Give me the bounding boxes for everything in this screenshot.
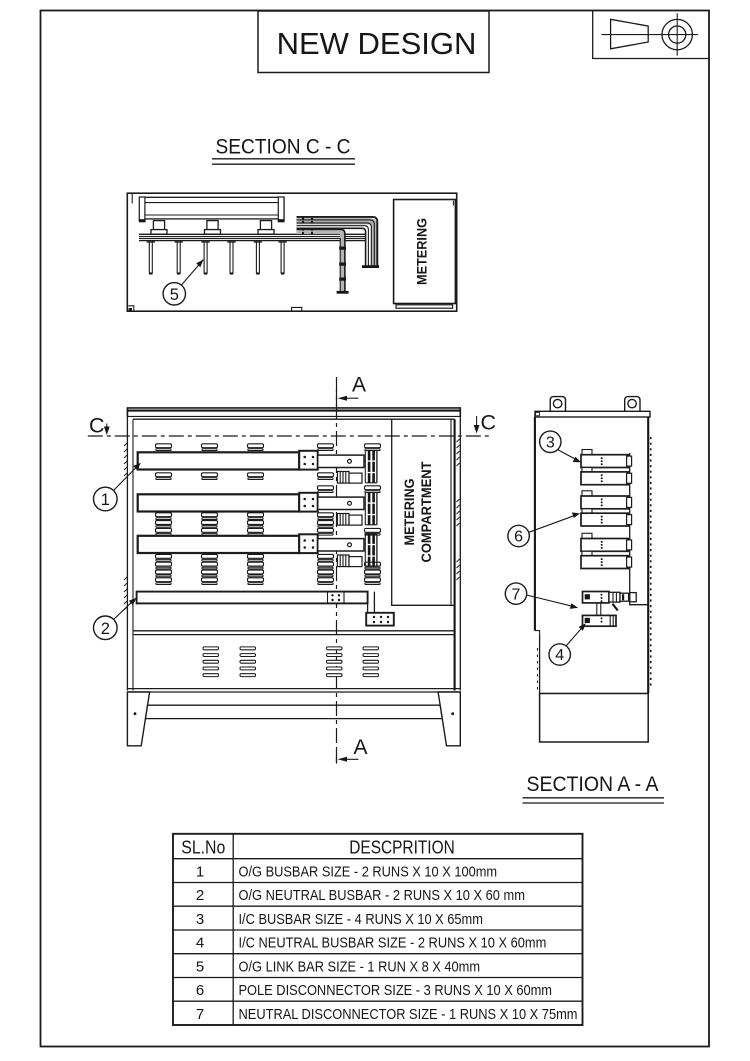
svg-text:5: 5 xyxy=(170,286,179,304)
svg-text:SECTION A - A: SECTION A - A xyxy=(527,773,659,796)
svg-text:7: 7 xyxy=(512,586,521,603)
svg-text:I/C NEUTRAL BUSBAR SIZE - 2 RU: I/C NEUTRAL BUSBAR SIZE - 2 RUNS X 10 X … xyxy=(239,936,547,952)
svg-text:1: 1 xyxy=(101,491,110,509)
svg-text:C: C xyxy=(89,414,105,438)
svg-text:2: 2 xyxy=(196,887,204,904)
svg-text:NEW DESIGN: NEW DESIGN xyxy=(277,26,477,61)
svg-text:SECTION C - C: SECTION C - C xyxy=(216,136,351,159)
svg-text:NEUTRAL DISCONNECTOR SIZE - 1: NEUTRAL DISCONNECTOR SIZE - 1 RUNS X 10 … xyxy=(239,1007,578,1023)
svg-text:6: 6 xyxy=(514,529,523,546)
svg-text:5: 5 xyxy=(196,958,204,975)
svg-text:DESCPRITION: DESCPRITION xyxy=(349,838,455,858)
svg-text:A: A xyxy=(354,736,368,759)
svg-text:3: 3 xyxy=(546,435,555,452)
svg-text:6: 6 xyxy=(196,982,204,999)
svg-text:O/G LINK BAR SIZE - 1 RUN X 8: O/G LINK BAR SIZE - 1 RUN X 8 X 40mm xyxy=(239,959,481,975)
svg-text:2: 2 xyxy=(101,620,110,638)
svg-text:METERING: METERING xyxy=(402,479,417,546)
svg-text:4: 4 xyxy=(555,647,564,664)
svg-text:O/G BUSBAR SIZE - 2 RUNS X 10: O/G BUSBAR SIZE - 2 RUNS X 10 X 100mm xyxy=(239,864,498,880)
svg-text:SL.No: SL.No xyxy=(181,838,225,858)
svg-text:7: 7 xyxy=(196,1006,204,1023)
svg-text:POLE DISCONNECTOR SIZE - 3 RUN: POLE DISCONNECTOR SIZE - 3 RUNS X 10 X 6… xyxy=(239,983,553,999)
svg-text:C: C xyxy=(481,411,497,435)
svg-text:O/G NEUTRAL BUSBAR - 2 RUNS X: O/G NEUTRAL BUSBAR - 2 RUNS X 10 X 60 mm xyxy=(239,888,525,904)
svg-text:4: 4 xyxy=(196,935,204,952)
svg-text:METERING: METERING xyxy=(415,218,430,285)
svg-text:A: A xyxy=(352,373,366,396)
svg-text:1: 1 xyxy=(196,863,204,880)
svg-text:COMPARTMENT: COMPARTMENT xyxy=(419,461,434,563)
svg-text:I/C BUSBAR SIZE - 4 RUNS X 10: I/C BUSBAR SIZE - 4 RUNS X 10 X 65mm xyxy=(239,912,483,928)
svg-text:3: 3 xyxy=(196,911,204,928)
